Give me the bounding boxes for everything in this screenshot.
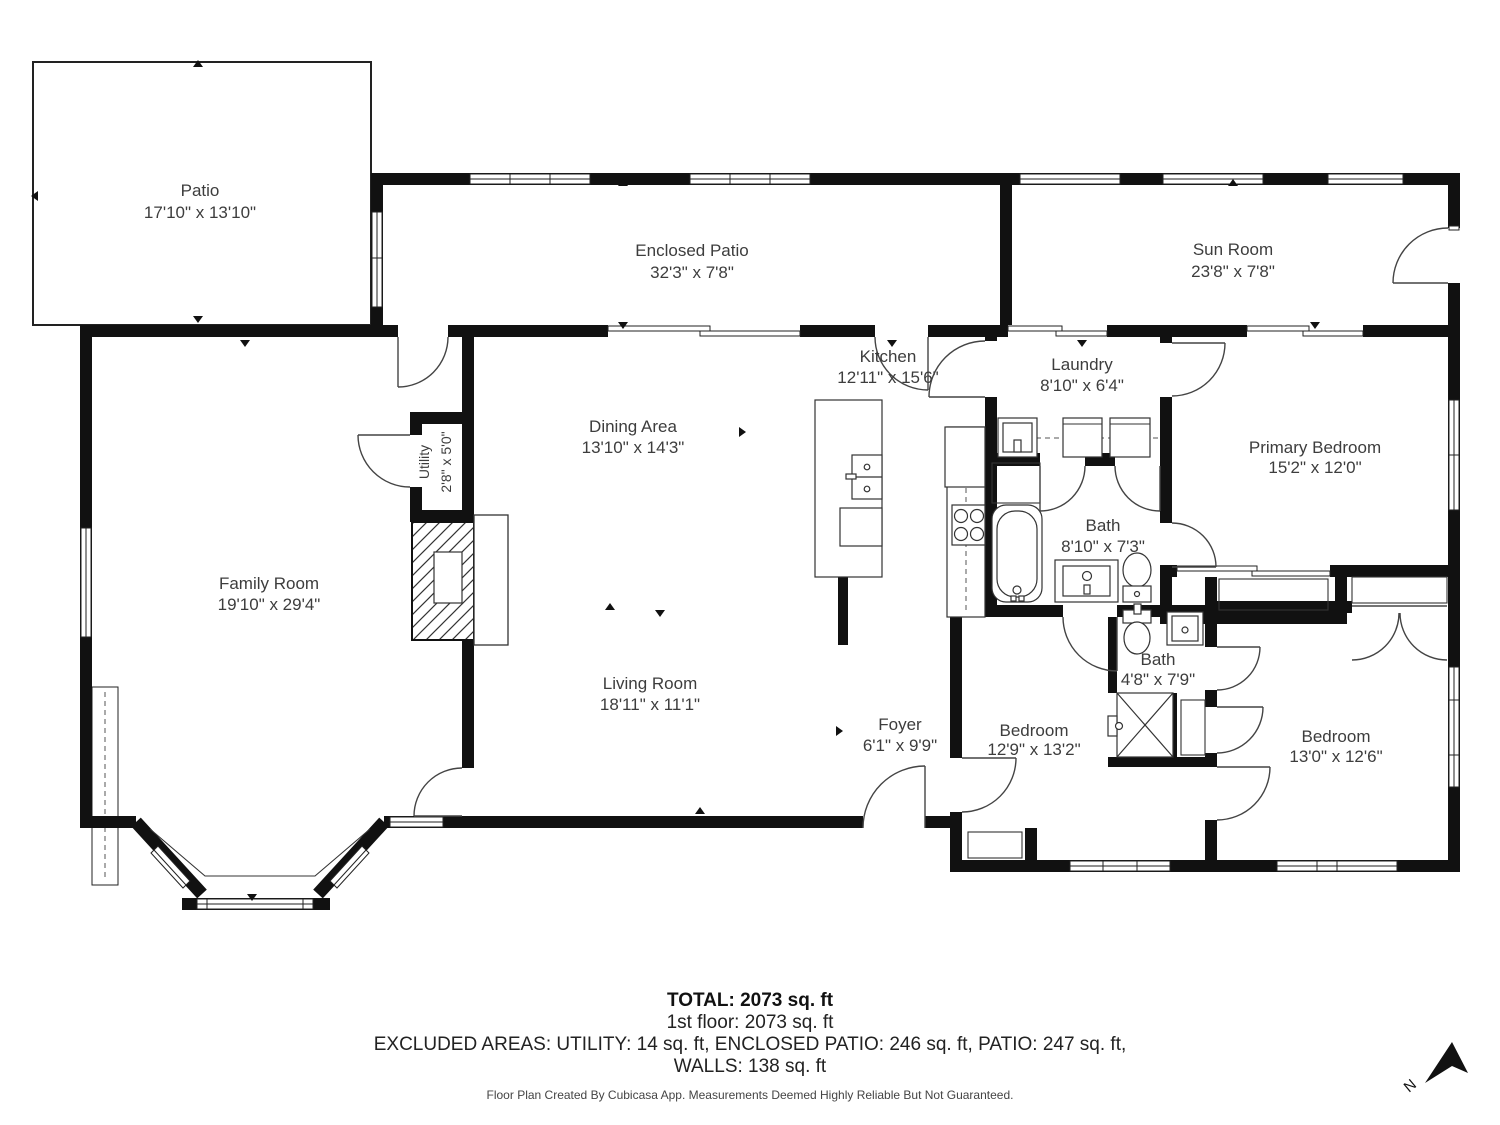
svg-text:Bedroom: Bedroom [1302, 727, 1371, 746]
summary-excluded: EXCLUDED AREAS: UTILITY: 14 sq. ft, ENCL… [374, 1034, 1127, 1055]
svg-text:4'8" x 7'9": 4'8" x 7'9" [1121, 670, 1195, 689]
compass: N [1401, 1042, 1468, 1096]
fireplace [412, 515, 508, 645]
room-label-bedroom-2: Bedroom 13'0" x 12'6" [1289, 727, 1382, 766]
svg-text:Family Room: Family Room [219, 574, 319, 593]
room-label-dining-area: Dining Area 13'10" x 14'3" [582, 417, 685, 457]
compass-n-label: N [1401, 1076, 1420, 1096]
summary-walls: WALLS: 138 sq. ft [674, 1056, 827, 1077]
svg-text:12'11" x 15'6": 12'11" x 15'6" [837, 368, 938, 387]
svg-text:Dining Area: Dining Area [589, 417, 677, 436]
svg-text:18'11" x 11'1": 18'11" x 11'1" [600, 695, 700, 714]
svg-text:12'9" x 13'2": 12'9" x 13'2" [987, 740, 1080, 759]
svg-text:19'10" x 29'4": 19'10" x 29'4" [218, 595, 321, 614]
wall-column [92, 687, 118, 885]
svg-text:Sun Room: Sun Room [1193, 240, 1273, 259]
summary: TOTAL: 2073 sq. ft 1st floor: 2073 sq. f… [374, 990, 1127, 1102]
svg-text:23'8" x 7'8": 23'8" x 7'8" [1191, 262, 1275, 281]
room-label-enclosed-patio: Enclosed Patio 32'3" x 7'8" [635, 241, 748, 282]
svg-text:13'0" x 12'6": 13'0" x 12'6" [1289, 747, 1382, 766]
svg-text:Bath: Bath [1141, 650, 1176, 669]
svg-text:13'10" x 14'3": 13'10" x 14'3" [582, 438, 685, 457]
room-label-primary-bedroom: Primary Bedroom 15'2" x 12'0" [1249, 438, 1381, 477]
room-label-bath: Bath 8'10" x 7'3" [1061, 516, 1145, 556]
svg-text:Living Room: Living Room [603, 674, 698, 693]
room-label-bedroom-1: Bedroom 12'9" x 13'2" [987, 721, 1080, 759]
svg-text:8'10" x 6'4": 8'10" x 6'4" [1040, 376, 1124, 395]
compass-arrow-icon [1425, 1042, 1468, 1083]
room-label-kitchen: Kitchen 12'11" x 15'6" [837, 347, 938, 387]
summary-first-floor: 1st floor: 2073 sq. ft [667, 1012, 835, 1033]
room-label-laundry: Laundry 8'10" x 6'4" [1040, 355, 1124, 395]
svg-text:Bath: Bath [1086, 516, 1121, 535]
floor-plan-page: Patio 17'10" x 13'10" Enclosed Patio 32'… [0, 0, 1500, 1125]
laundry-fixtures [998, 418, 1158, 457]
svg-text:17'10" x 13'10": 17'10" x 13'10" [144, 203, 256, 222]
room-label-sun-room: Sun Room 23'8" x 7'8" [1191, 240, 1275, 281]
svg-text:32'3" x 7'8": 32'3" x 7'8" [650, 263, 734, 282]
summary-total: TOTAL: 2073 sq. ft [667, 990, 834, 1011]
svg-text:Patio: Patio [181, 181, 220, 200]
svg-text:2'8" x 5'0": 2'8" x 5'0" [438, 431, 454, 492]
room-label-living-room: Living Room 18'11" x 11'1" [600, 674, 700, 714]
disclaimer: Floor Plan Created By Cubicasa App. Meas… [487, 1088, 1014, 1102]
svg-text:Foyer: Foyer [878, 715, 922, 734]
svg-text:8'10" x 7'3": 8'10" x 7'3" [1061, 537, 1145, 556]
toilet [1123, 553, 1151, 587]
svg-text:Utility: Utility [416, 445, 432, 479]
room-label-family-room: Family Room 19'10" x 29'4" [218, 574, 321, 614]
room-label-bath-2: Bath 4'8" x 7'9" [1121, 650, 1195, 689]
bay-window [136, 822, 384, 910]
svg-text:Enclosed Patio: Enclosed Patio [635, 241, 748, 260]
svg-text:Primary Bedroom: Primary Bedroom [1249, 438, 1381, 457]
kitchen-island [815, 400, 882, 577]
svg-text:Bedroom: Bedroom [1000, 721, 1069, 740]
svg-text:Kitchen: Kitchen [860, 347, 917, 366]
svg-text:6'1" x 9'9": 6'1" x 9'9" [863, 736, 937, 755]
room-label-foyer: Foyer 6'1" x 9'9" [863, 715, 937, 755]
kitchen-counter [945, 427, 985, 617]
svg-text:Laundry: Laundry [1051, 355, 1113, 374]
floor-plan-drawing: Patio 17'10" x 13'10" Enclosed Patio 32'… [0, 0, 1500, 1125]
svg-text:15'2" x 12'0": 15'2" x 12'0" [1268, 458, 1361, 477]
